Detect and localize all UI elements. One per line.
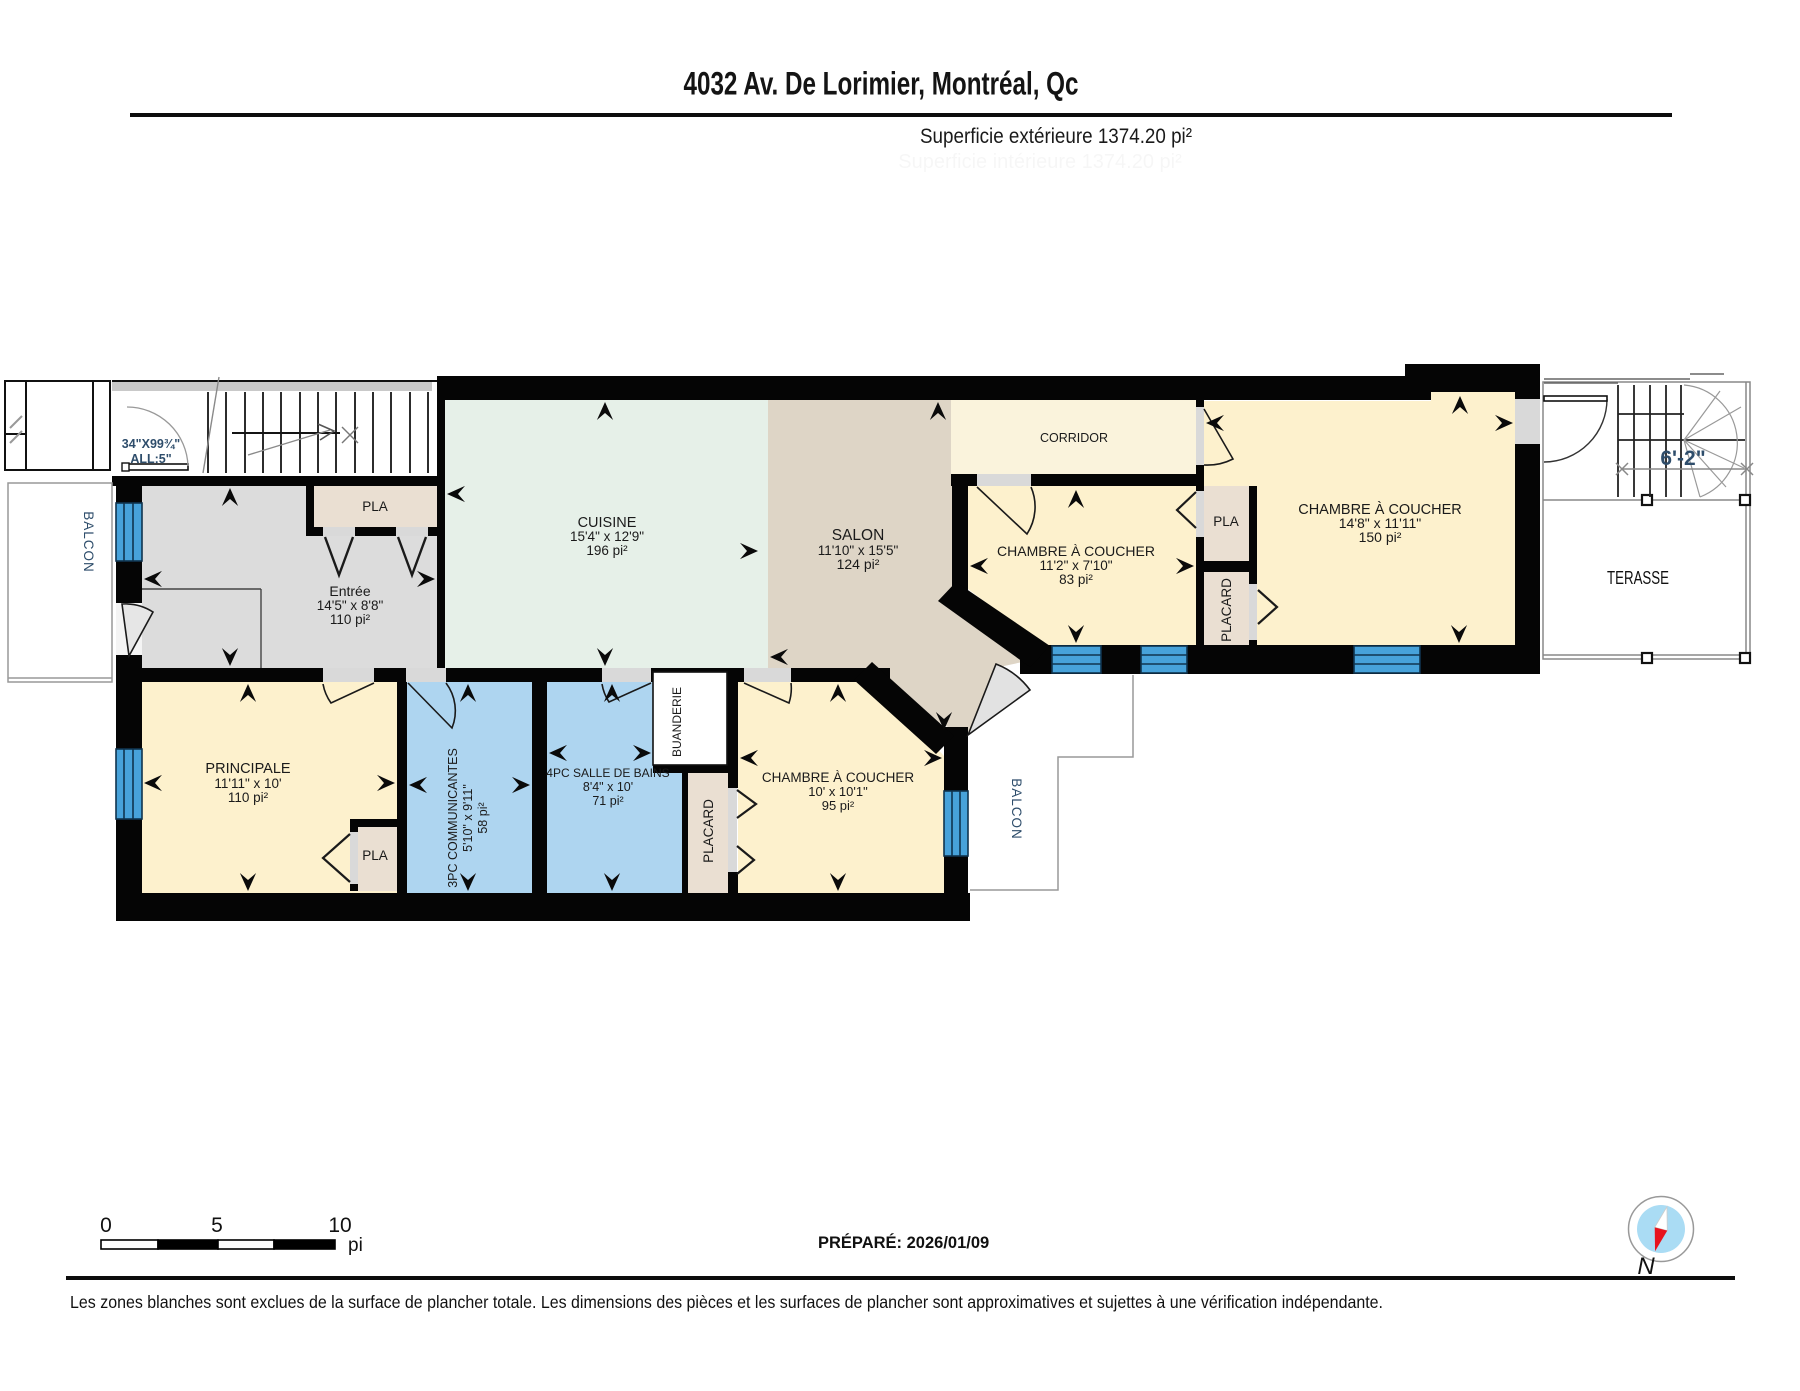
svg-text:150 pi²: 150 pi² <box>1359 529 1402 545</box>
svg-text:Entrée: Entrée <box>329 583 370 599</box>
svg-text:CHAMBRE À COUCHER: CHAMBRE À COUCHER <box>762 770 915 785</box>
svg-text:15'4" x 12'9": 15'4" x 12'9" <box>570 529 644 544</box>
svg-text:TERASSE: TERASSE <box>1607 567 1669 588</box>
svg-text:95 pi²: 95 pi² <box>822 798 855 813</box>
svg-text:PLA: PLA <box>362 848 388 863</box>
svg-text:SALON: SALON <box>832 527 885 544</box>
svg-text:71 pi²: 71 pi² <box>592 794 623 808</box>
svg-text:196 pi²: 196 pi² <box>586 543 628 558</box>
svg-text:6'-2": 6'-2" <box>1660 447 1705 470</box>
svg-text:CHAMBRE À COUCHER: CHAMBRE À COUCHER <box>997 543 1155 559</box>
svg-text:BALCON: BALCON <box>1009 778 1024 840</box>
svg-text:BALCON: BALCON <box>81 511 96 573</box>
svg-text:5: 5 <box>211 1214 223 1237</box>
svg-text:CORRIDOR: CORRIDOR <box>1040 431 1108 445</box>
svg-text:0: 0 <box>100 1214 112 1237</box>
svg-text:PLACARD: PLACARD <box>701 799 716 863</box>
svg-text:PLA: PLA <box>1213 514 1239 529</box>
svg-text:8'4" x 10': 8'4" x 10' <box>583 780 633 794</box>
svg-text:34"X99¾": 34"X99¾" <box>122 437 180 451</box>
svg-text:BUANDERIE: BUANDERIE <box>670 687 684 757</box>
svg-text:10: 10 <box>328 1214 351 1237</box>
svg-text:11'2" x 7'10": 11'2" x 7'10" <box>1039 558 1112 573</box>
svg-text:10' x 10'1": 10' x 10'1" <box>808 784 868 799</box>
svg-text:11'11" x 10': 11'11" x 10' <box>214 776 281 791</box>
svg-text:3PC COMMUNICANTES: 3PC COMMUNICANTES <box>446 748 460 888</box>
svg-text:PRINCIPALE: PRINCIPALE <box>205 761 290 777</box>
svg-text:4PC SALLE DE BAINS: 4PC SALLE DE BAINS <box>546 766 669 780</box>
svg-text:4032 Av. De Lorimier, Montréal: 4032 Av. De Lorimier, Montréal, Qc <box>684 66 1079 102</box>
svg-text:PRÉPARÉ: 2026/01/09: PRÉPARÉ: 2026/01/09 <box>818 1233 989 1252</box>
svg-text:110 pi²: 110 pi² <box>330 612 371 627</box>
svg-text:Superficie extérieure 1374.20: Superficie extérieure 1374.20 pi² <box>920 125 1192 148</box>
svg-text:Superficie intérieure 1374.20: Superficie intérieure 1374.20 pi² <box>898 151 1182 173</box>
svg-text:110 pi²: 110 pi² <box>228 790 269 805</box>
svg-text:PLACARD: PLACARD <box>1219 578 1234 642</box>
svg-text:5'10" x 9'11": 5'10" x 9'11" <box>461 784 475 852</box>
svg-text:124 pi²: 124 pi² <box>837 556 880 572</box>
svg-text:ALL:5": ALL:5" <box>130 452 171 466</box>
svg-text:83 pi²: 83 pi² <box>1059 572 1093 587</box>
svg-text:N: N <box>1637 1253 1655 1280</box>
svg-text:pi: pi <box>348 1235 363 1256</box>
svg-text:PLA: PLA <box>362 499 388 514</box>
svg-text:58 pi²: 58 pi² <box>476 802 490 833</box>
svg-text:Les zones blanches sont exclue: Les zones blanches sont exclues de la su… <box>70 1292 1383 1312</box>
svg-text:14'5" x 8'8": 14'5" x 8'8" <box>317 598 384 613</box>
